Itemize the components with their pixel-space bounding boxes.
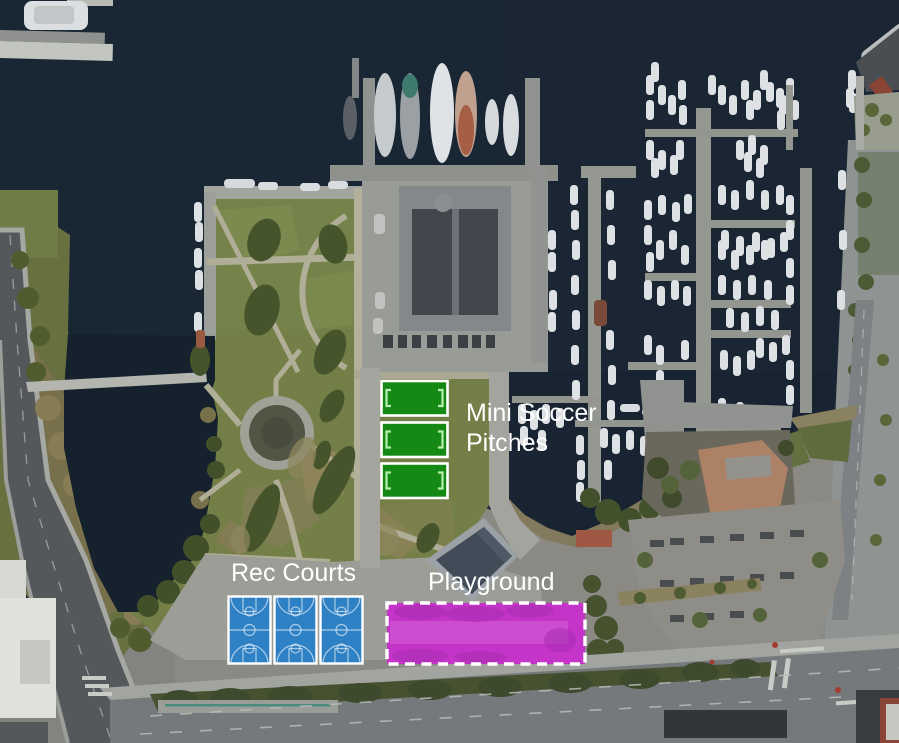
svg-text:Playground: Playground <box>428 568 554 596</box>
svg-text:Pitches: Pitches <box>466 429 548 457</box>
svg-text:Mini Soccer: Mini Soccer <box>466 399 597 427</box>
svg-text:Rec Courts: Rec Courts <box>231 559 356 587</box>
